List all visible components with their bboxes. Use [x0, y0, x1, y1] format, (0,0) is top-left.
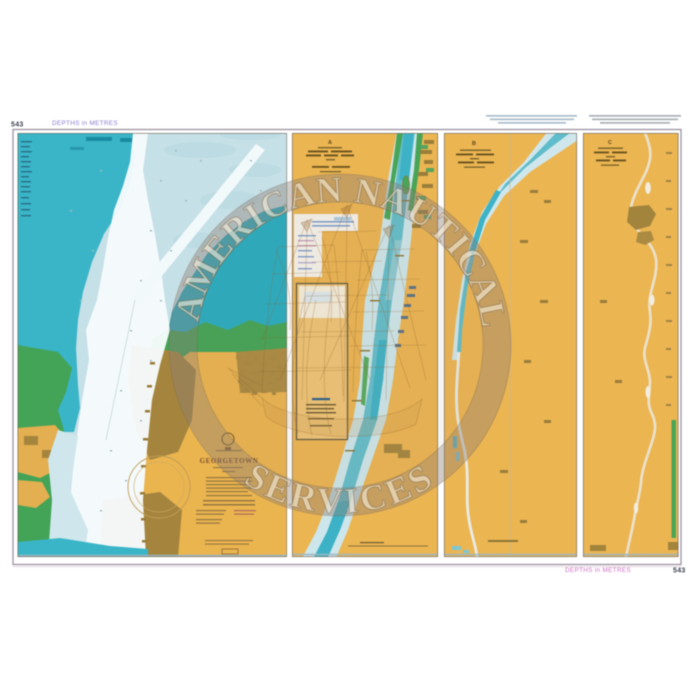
svg-text:A: A	[328, 140, 332, 146]
svg-text:B: B	[472, 141, 476, 147]
svg-text:543: 543	[673, 568, 686, 575]
svg-text:DEPTHS in METRES: DEPTHS in METRES	[52, 120, 118, 127]
svg-text:DEPTHS in METRES: DEPTHS in METRES	[565, 567, 631, 574]
svg-text:C: C	[608, 140, 612, 146]
svg-text:543: 543	[11, 122, 24, 129]
